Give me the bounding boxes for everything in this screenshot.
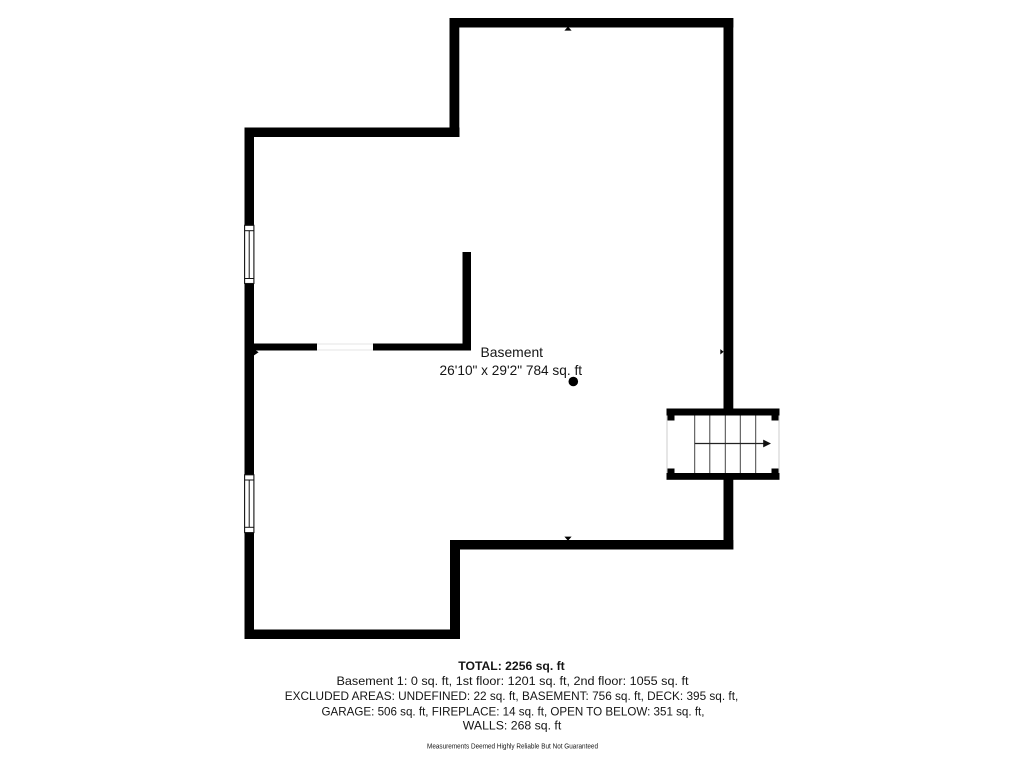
svg-text:Basement 1: 0 sq. ft, 1st floo: Basement 1: 0 sq. ft, 1st floor: 1201 sq… [337, 674, 690, 688]
svg-text:TOTAL: 2256 sq. ft: TOTAL: 2256 sq. ft [458, 659, 565, 673]
svg-text:GARAGE: 506 sq. ft, FIREPLACE:: GARAGE: 506 sq. ft, FIREPLACE: 14 sq. ft… [322, 704, 705, 718]
svg-text:26'10" x 29'2" 784 sq. ft: 26'10" x 29'2" 784 sq. ft [440, 362, 583, 378]
svg-text:EXCLUDED AREAS: UNDEFINED: 22: EXCLUDED AREAS: UNDEFINED: 22 sq. ft, BA… [285, 689, 739, 703]
svg-text:Basement: Basement [481, 344, 544, 360]
svg-text:Measurements Deemed Highly Rel: Measurements Deemed Highly Reliable But … [427, 744, 598, 751]
svg-text:WALLS: 268 sq. ft: WALLS: 268 sq. ft [463, 719, 562, 733]
